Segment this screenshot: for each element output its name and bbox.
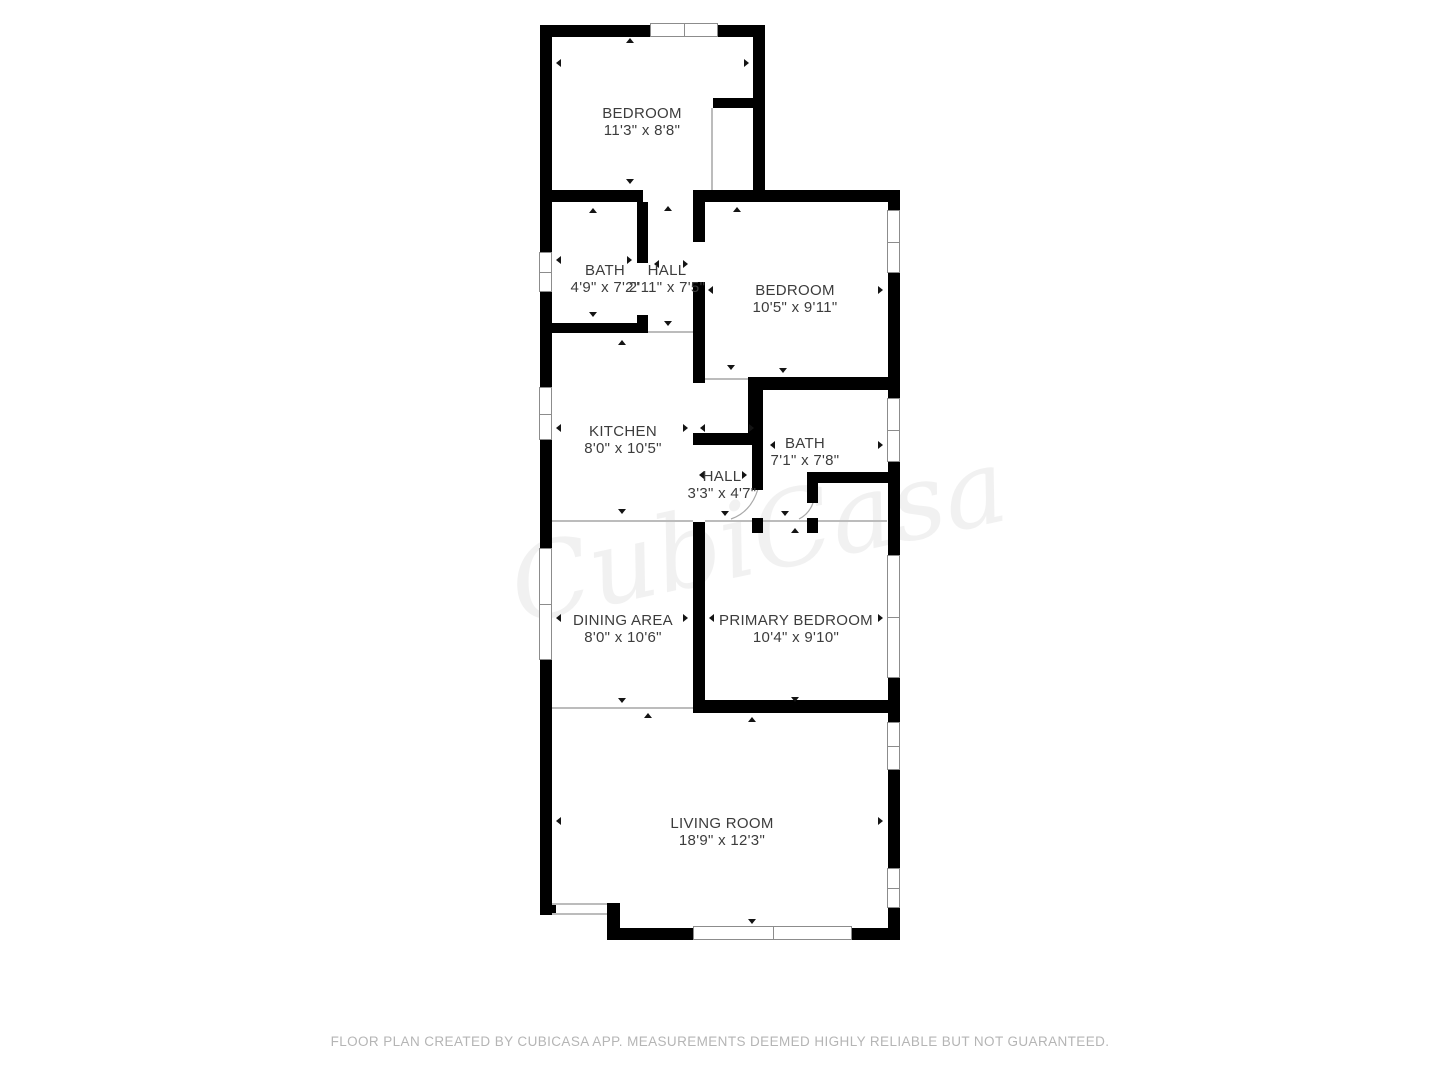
window xyxy=(887,398,900,462)
opening-line xyxy=(552,707,693,709)
opening-marker xyxy=(626,179,634,184)
window-mullion xyxy=(888,746,899,747)
door-swing-arcs xyxy=(0,0,1440,1080)
wall-segment xyxy=(748,377,900,390)
opening-marker xyxy=(878,286,883,294)
wall-segment xyxy=(540,25,650,37)
opening-marker xyxy=(589,312,597,317)
opening-marker xyxy=(683,424,688,432)
room-label-living-room: LIVING ROOM18'9" x 12'3" xyxy=(670,815,773,849)
wall-segment xyxy=(888,190,900,210)
floor-plan: CubiCasa BEDROOM11'3" x 8'8"BATH4'9" x 7… xyxy=(0,0,1440,1080)
opening-marker xyxy=(618,698,626,703)
opening-marker xyxy=(700,424,705,432)
opening-marker xyxy=(748,717,756,722)
opening-marker xyxy=(556,614,561,622)
opening-line xyxy=(552,903,607,905)
wall-segment xyxy=(807,518,818,533)
window xyxy=(887,555,900,678)
opening-marker xyxy=(556,256,561,264)
room-dimensions: 8'0" x 10'6" xyxy=(573,629,673,646)
room-dimensions: 10'5" x 9'11" xyxy=(752,299,837,316)
window xyxy=(539,252,552,292)
room-dimensions: 11'3" x 8'8" xyxy=(602,122,682,139)
opening-marker xyxy=(781,511,789,516)
window-mullion xyxy=(888,888,899,889)
wall-segment xyxy=(752,518,763,533)
wall-segment xyxy=(815,472,900,483)
wall-segment xyxy=(637,202,648,263)
wall-segment xyxy=(540,660,552,903)
room-name: BATH xyxy=(771,435,840,452)
opening-marker xyxy=(727,365,735,370)
wall-segment xyxy=(540,190,643,202)
opening-marker xyxy=(791,697,799,702)
opening-line xyxy=(711,108,713,190)
room-name: DINING AREA xyxy=(573,612,673,629)
opening-marker xyxy=(878,817,883,825)
opening-line xyxy=(763,520,807,522)
opening-marker xyxy=(791,528,799,533)
window-mullion xyxy=(540,272,551,273)
wall-segment xyxy=(753,25,765,202)
opening-line xyxy=(705,378,748,380)
opening-marker xyxy=(779,368,787,373)
room-label-bedroom-right: BEDROOM10'5" x 9'11" xyxy=(752,282,837,316)
window-mullion xyxy=(888,430,899,431)
room-label-hall-top: HALL2'11" x 7'5" xyxy=(629,262,705,296)
opening-marker xyxy=(708,286,713,294)
opening-line xyxy=(648,331,693,333)
wall-segment xyxy=(552,323,648,333)
opening-marker xyxy=(721,511,729,516)
opening-marker xyxy=(709,614,714,622)
window-mullion xyxy=(540,414,551,415)
room-label-kitchen: KITCHEN8'0" x 10'5" xyxy=(584,423,662,457)
room-label-bedroom-top: BEDROOM11'3" x 8'8" xyxy=(602,105,682,139)
opening-marker xyxy=(733,207,741,212)
room-name: HALL xyxy=(629,262,705,279)
room-label-hall-middle: HALL3'3" x 4'7" xyxy=(688,468,757,502)
room-dimensions: 10'4" x 9'10" xyxy=(719,629,873,646)
wall-segment xyxy=(693,522,705,712)
room-dimensions: 2'11" x 7'5" xyxy=(629,279,705,296)
opening-line xyxy=(705,520,752,522)
room-name: BEDROOM xyxy=(602,105,682,122)
opening-line xyxy=(552,520,693,522)
opening-marker xyxy=(618,509,626,514)
window-mullion xyxy=(540,604,551,605)
window xyxy=(887,868,900,908)
window xyxy=(539,387,552,440)
room-name: HALL xyxy=(688,468,757,485)
wall-segment xyxy=(807,472,818,503)
opening-marker xyxy=(878,614,883,622)
room-name: PRIMARY BEDROOM xyxy=(719,612,873,629)
opening-marker xyxy=(664,321,672,326)
opening-line xyxy=(818,520,887,522)
wall-segment xyxy=(693,433,758,445)
window-mullion xyxy=(888,617,899,618)
wall-segment xyxy=(888,770,900,868)
opening-marker xyxy=(589,208,597,213)
opening-marker xyxy=(878,441,883,449)
opening-marker xyxy=(644,713,652,718)
room-label-primary-bedroom: PRIMARY BEDROOM10'4" x 9'10" xyxy=(719,612,873,646)
wall-segment xyxy=(540,440,552,548)
wall-segment xyxy=(852,928,900,940)
window xyxy=(887,210,900,273)
opening-marker xyxy=(556,59,561,67)
window xyxy=(539,548,552,660)
opening-marker xyxy=(556,424,561,432)
window xyxy=(693,926,852,940)
wall-segment xyxy=(693,202,705,242)
wall-segment xyxy=(693,282,705,383)
window xyxy=(887,722,900,770)
footer-disclaimer: FLOOR PLAN CREATED BY CUBICASA APP. MEAS… xyxy=(331,1034,1110,1049)
wall-segment xyxy=(693,190,900,202)
room-name: LIVING ROOM xyxy=(670,815,773,832)
room-dimensions: 3'3" x 4'7" xyxy=(688,485,757,502)
room-label-dining-area: DINING AREA8'0" x 10'6" xyxy=(573,612,673,646)
wall-segment xyxy=(540,25,552,252)
room-name: KITCHEN xyxy=(584,423,662,440)
wall-segment xyxy=(607,928,693,940)
opening-marker xyxy=(683,614,688,622)
room-dimensions: 18'9" x 12'3" xyxy=(670,832,773,849)
opening-line xyxy=(552,913,607,915)
opening-marker xyxy=(664,206,672,211)
opening-marker xyxy=(626,38,634,43)
opening-marker xyxy=(618,340,626,345)
opening-marker xyxy=(556,817,561,825)
wall-segment xyxy=(713,98,753,108)
room-dimensions: 8'0" x 10'5" xyxy=(584,440,662,457)
opening-marker xyxy=(748,919,756,924)
wall-segment xyxy=(540,292,552,387)
room-dimensions: 7'1" x 7'8" xyxy=(771,452,840,469)
room-name: BEDROOM xyxy=(752,282,837,299)
window-mullion xyxy=(684,24,685,36)
room-label-bath-middle: BATH7'1" x 7'8" xyxy=(771,435,840,469)
opening-marker xyxy=(749,424,754,432)
window-mullion xyxy=(773,927,774,939)
window xyxy=(650,23,718,37)
opening-marker xyxy=(744,59,749,67)
window-mullion xyxy=(888,242,899,243)
